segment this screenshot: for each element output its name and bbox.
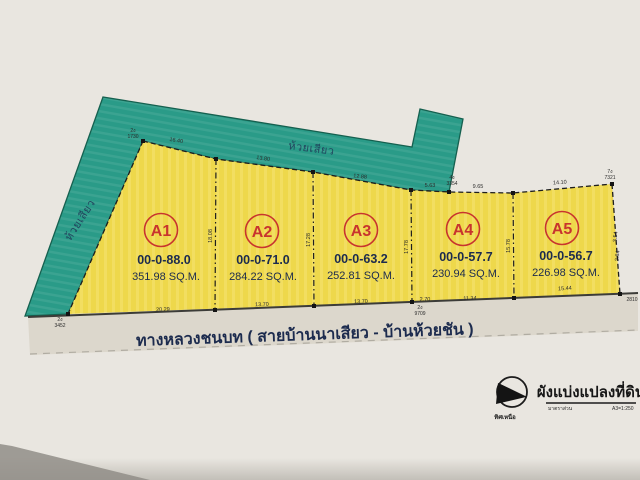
plot-a5-ratio: 00-0-56.7	[539, 249, 593, 263]
dim-side-a2a3: 17.28	[306, 233, 312, 247]
pt-2810-num: 2810	[626, 297, 637, 303]
dim-bottom-gap: 2.70	[420, 297, 431, 303]
dim-side-a1a2: 18.08	[208, 229, 214, 243]
dim-top-a4-left: 5.63	[425, 183, 436, 189]
pt-7321-num: 7321	[604, 175, 615, 181]
plot-a3-area: 252.81 SQ.M.	[327, 270, 395, 282]
plot-a4-ratio: 00-0-57.7	[439, 250, 493, 264]
dim-bottom-a4: 11.34	[463, 296, 477, 302]
pt-3452-num: 3452	[54, 323, 65, 329]
scanned-plan-page: ห้วยเสียว ห้วยเสียว A1 00-0-88.0 351.98 …	[0, 0, 640, 480]
plot-a3-ratio: 00-0-63.2	[334, 252, 388, 266]
dim-side-a3a4: 17.78	[404, 240, 410, 254]
dim-side-right-2: 2.84	[615, 250, 622, 261]
dim-side-right-1: 3.54	[613, 231, 620, 242]
plot-a3-label: A3	[351, 223, 372, 240]
dim-bottom-a3: 13.70	[354, 299, 368, 305]
pt-3354-num: 3354	[446, 181, 457, 187]
plot-a2-area: 284.22 SQ.M.	[229, 271, 297, 283]
plan-drawing: ห้วยเสียว ห้วยเสียว A1 00-0-88.0 351.98 …	[0, 0, 640, 480]
plot-a2-label: A2	[252, 224, 273, 241]
plot-a4-label: A4	[453, 222, 474, 239]
north-label: ทิศเหนือ	[494, 413, 516, 421]
dim-bottom-a5: 15.44	[558, 286, 572, 293]
plot-a1-area: 351.98 SQ.M.	[132, 271, 200, 283]
scale-value: A3=1:250	[612, 406, 634, 412]
plot-a2-ratio: 00-0-71.0	[236, 253, 290, 267]
plot-a1-label: A1	[151, 223, 172, 240]
dim-bottom-a1: 20.29	[156, 307, 170, 313]
plot-a1-ratio: 00-0-88.0	[137, 253, 191, 267]
dim-top-a4-right: 9.65	[473, 184, 484, 190]
plan-title: ผังแบ่งแปลงที่ดิน	[537, 381, 640, 401]
plot-a5-area: 226.98 SQ.M.	[532, 267, 600, 279]
pt-1730-num: 1730	[127, 134, 138, 140]
dim-bottom-a2: 13.70	[255, 302, 269, 308]
pt-9709-num: 9709	[414, 311, 425, 317]
plot-a5-label: A5	[552, 221, 573, 238]
plot-a4-area: 230.94 SQ.M.	[432, 268, 500, 280]
dim-side-a4a5: 15.78	[506, 239, 512, 253]
scale-label: มาตราส่วน	[548, 406, 573, 412]
dim-top-a5: 14.10	[553, 180, 567, 187]
